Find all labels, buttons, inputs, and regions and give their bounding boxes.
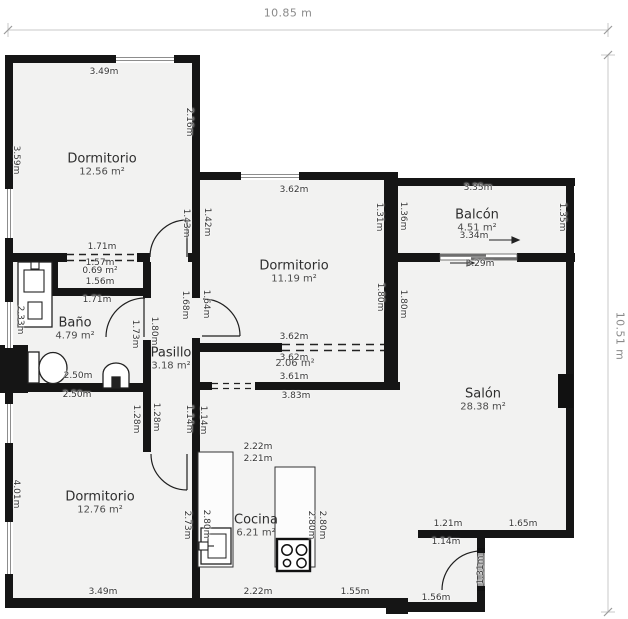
dimension-label: 2.33m [15,306,25,335]
dimension-label: 2.50m [64,371,93,381]
room-name: Dormitorio [67,152,136,167]
dimension-label: 1.21m [434,519,463,529]
dimension-label: 3.83m [282,391,311,401]
dimension-label: 4.01m [11,480,21,509]
dimension-label: 1.64m [201,290,211,319]
room-label: 2.06 m² [275,358,314,370]
dimension-label: 1.80m [398,290,408,319]
room-area: 6.21 m² [234,528,278,540]
dimension-label: 1.65m [509,519,538,529]
room-label: Pasillo3.18 m² [151,346,192,373]
room-label: Balcón4.51 m² [455,208,499,235]
room-area: 11.19 m² [259,274,328,286]
room-name: Baño [55,316,94,331]
room-name: Balcón [455,208,499,223]
room-name: Pasillo [151,346,192,361]
room-label: Salón28.38 m² [460,387,506,414]
dimension-label: 3.61m [280,372,309,382]
dimension-label: 2.16m [184,108,194,137]
dimension-label: 1.35m [557,203,567,232]
outer-dimension-label: 10.85 m [264,7,313,20]
room-area: 12.56 m² [67,167,136,179]
room-name: Salón [460,387,506,402]
room-area: 4.51 m² [455,223,499,235]
dimension-label: 1.80m [375,283,385,312]
dimension-label: 1.36m [398,202,408,231]
labels-layer: 10.85 m10.51 m3.49m2.16m3.59m1.71m1.57m0… [0,0,628,619]
dimension-label: 1.28m [151,403,161,432]
dimension-label: 2.22m [244,442,273,452]
dimension-label: 3.35m [464,183,493,193]
room-name: Dormitorio [65,490,134,505]
dimension-label: 1.14m [198,406,208,435]
dimension-label: 3.29m [466,259,495,269]
dimension-label: 1.31m [476,556,486,585]
dimension-label: 1.80m [149,317,159,346]
dimension-label: 2.80m [306,511,316,540]
dimension-label: 2.50m [63,390,92,400]
room-area: 2.06 m² [275,358,314,370]
dimension-label: 3.49m [90,67,119,77]
dimension-label: 1.42m [202,208,212,237]
dimension-label: 1.31m [374,203,384,232]
dimension-label: 1.55m [341,587,370,597]
room-label: Cocina6.21 m² [234,513,278,540]
room-label: Dormitorio12.76 m² [65,490,134,517]
room-label: Dormitorio12.56 m² [67,152,136,179]
dimension-label: 2.73m [182,511,192,540]
room-area: 12.76 m² [65,505,134,517]
dimension-label: 2.22m [244,587,273,597]
dimension-label: 1.68m [180,291,190,320]
outer-dimension-label: 10.51 m [614,312,627,361]
dimension-label: 1.73m [130,320,140,349]
dimension-label: 1.43m [181,209,191,238]
dimension-label: 1.56m [86,277,115,287]
room-area: 28.38 m² [460,402,506,414]
dimension-label: 1.56m [422,593,451,603]
dimension-label: 1.28m [131,405,141,434]
dimension-label: 2.21m [244,454,273,464]
dimension-label: 2.80m [317,511,327,540]
dimension-label: 1.14m [432,537,461,547]
room-name: Dormitorio [259,259,328,274]
room-label: Dormitorio11.19 m² [259,259,328,286]
dimension-label: 3.49m [89,587,118,597]
room-area: 3.18 m² [151,361,192,373]
dimension-label: 1.71m [88,242,117,252]
dimension-label: 1.71m [83,295,112,305]
dimension-label: 1.14m [184,405,194,434]
dimension-label: 3.59m [11,146,21,175]
room-name: Cocina [234,513,278,528]
dimension-label: 0.69 m² [82,266,117,276]
dimension-label: 2.80m [201,510,211,539]
dimension-label: 3.62m [280,185,309,195]
floorplan-canvas: 10.85 m10.51 m3.49m2.16m3.59m1.71m1.57m0… [0,0,628,619]
room-area: 4.79 m² [55,331,94,343]
room-label: Baño4.79 m² [55,316,94,343]
dimension-label: 3.62m [280,332,309,342]
